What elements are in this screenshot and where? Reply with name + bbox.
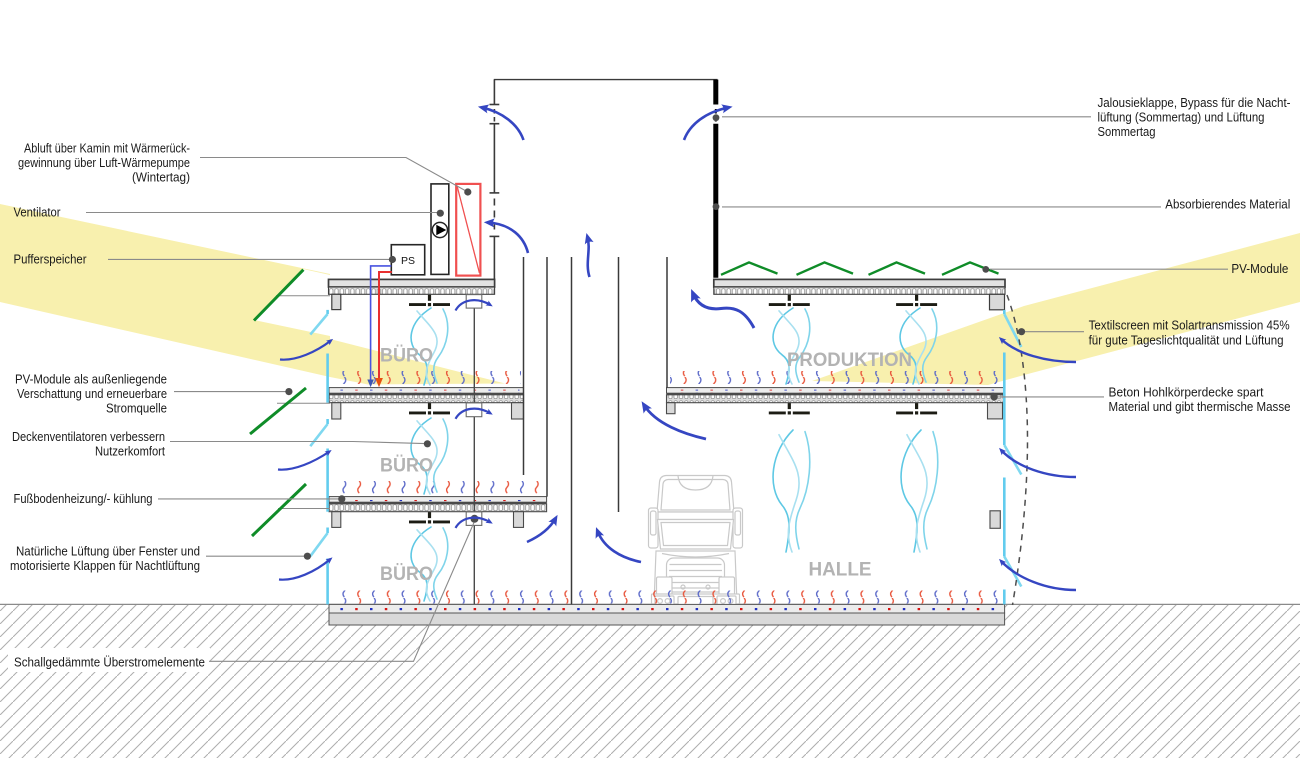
- svg-text:Textilscreen mit Solartransmis: Textilscreen mit Solartransmission 45%fü…: [1089, 318, 1290, 348]
- svg-text:BÜRO: BÜRO: [380, 453, 433, 476]
- svg-text:PV-Module: PV-Module: [1231, 261, 1288, 276]
- svg-text:Schallgedämmte Überstromelemen: Schallgedämmte Überstromelemente: [14, 654, 205, 669]
- svg-text:HALLE: HALLE: [809, 558, 872, 580]
- svg-text:Pufferspeicher: Pufferspeicher: [14, 252, 88, 267]
- svg-text:PS: PS: [401, 255, 415, 267]
- svg-text:BÜRO: BÜRO: [380, 343, 433, 366]
- svg-text:Natürliche Lüftung über Fenste: Natürliche Lüftung über Fenster undmotor…: [10, 543, 200, 573]
- svg-text:Absorbierendes Material: Absorbierendes Material: [1165, 197, 1290, 212]
- svg-text:Ventilator: Ventilator: [14, 205, 62, 220]
- svg-text:BÜRO: BÜRO: [380, 562, 433, 585]
- svg-text:Beton Hohlkörperdecke spartMat: Beton Hohlkörperdecke spartMaterial und …: [1109, 384, 1291, 414]
- svg-text:Fußbodenheizung/- kühlung: Fußbodenheizung/- kühlung: [14, 491, 153, 506]
- svg-text:PRODUKTION: PRODUKTION: [787, 349, 912, 371]
